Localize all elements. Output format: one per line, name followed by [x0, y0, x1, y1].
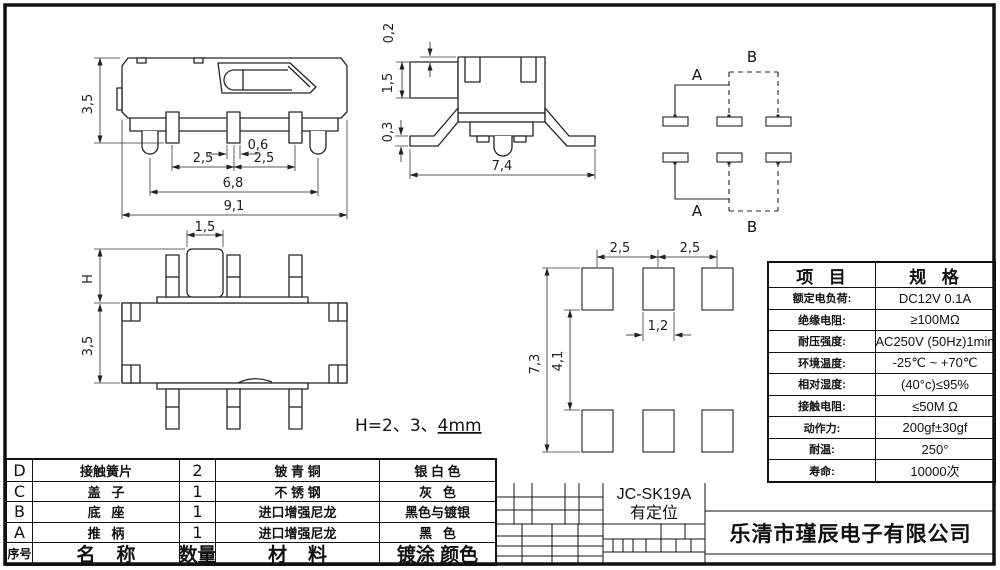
spec-row-label: 动作力:: [769, 416, 875, 438]
part-row-name: 接触簧片: [32, 460, 179, 481]
spec-header-item: 项 目: [769, 263, 875, 287]
spec-row-label: 环境温度:: [769, 352, 875, 374]
part-row-qty: 2: [179, 460, 215, 481]
spec-row-label: 额定电负荷:: [769, 287, 875, 309]
spec-row-value: ≥100MΩ: [875, 309, 994, 331]
part-row-name: 底 座: [32, 501, 179, 522]
spec-row-value: 250°: [875, 438, 994, 460]
model-number-box: JC-SK19A 有定位: [604, 485, 704, 523]
circuit-label-b-top: B: [747, 48, 757, 66]
spec-row-value: (40°c)≤95%: [875, 373, 994, 395]
h-note-prefix: H=2、3、: [355, 416, 438, 436]
spec-row-label: 相对湿度:: [769, 373, 875, 395]
spec-row-value: DC12V 0.1A: [875, 287, 994, 309]
circuit-label-b-bottom: B: [747, 218, 757, 236]
part-row-no: C: [7, 481, 32, 502]
circuit-label-a-top: A: [692, 66, 703, 84]
dim-top-overall-width: 9,1: [224, 199, 245, 214]
part-row-material: 进口增强尼龙: [215, 522, 379, 543]
circuit-label-a-bottom: A: [692, 202, 703, 220]
parts-footer-material: 材 料: [215, 542, 379, 564]
parts-footer-finish: 镀涂 颜色: [379, 542, 495, 564]
dim-footprint-pad-width: 1,2: [648, 319, 669, 334]
top-view: [122, 249, 347, 429]
part-row-no: B: [7, 501, 32, 522]
model-feature: 有定位: [630, 504, 678, 523]
side-view: [410, 57, 595, 156]
dim-front-feet-span: 6,8: [223, 176, 244, 191]
part-row-material: 铍 青 铜: [215, 460, 379, 481]
dim-footprint-outer-span: 7,3: [528, 354, 543, 375]
parts-table: D 接触簧片 2 铍 青 铜 银 白 色 C 盖 子 1 不 锈 钢 灰 色 B…: [5, 458, 497, 566]
dim-side-overall-width: 7,4: [492, 159, 513, 174]
footprint-view: [582, 268, 733, 452]
spec-row-value: 200gf±30gf: [875, 416, 994, 438]
dim-front-pitch-left: 2,5: [193, 151, 214, 166]
spec-row-value: 10000次: [875, 459, 994, 481]
part-row-finish: 黑色与镀银: [379, 501, 495, 522]
circuit-solid-path: [675, 85, 729, 199]
part-row-finish: 银 白 色: [379, 460, 495, 481]
part-row-name: 盖 子: [32, 481, 179, 502]
dim-front-pitch-right: 2,5: [254, 151, 275, 166]
h-note-underlined: 4mm: [438, 416, 482, 436]
company-name: 乐清市瑾辰电子有限公司: [706, 512, 995, 554]
dim-footprint-inner-span: 4,1: [551, 351, 566, 372]
dim-side-cover-lip: 0,2: [382, 23, 397, 44]
dim-top-body-depth: 3,5: [81, 336, 96, 357]
part-row-qty: 1: [179, 501, 215, 522]
part-row-finish: 灰 色: [379, 481, 495, 502]
circuit-diagram: [663, 72, 791, 211]
dim-side-knob-height: 1,5: [381, 73, 396, 94]
part-row-no: D: [7, 460, 32, 481]
circuit-dashed-path: [729, 72, 778, 211]
front-view: [117, 58, 347, 154]
dim-footprint-pitch-left: 2,5: [610, 241, 631, 256]
h-variant-note: H=2、3、4mm: [355, 416, 482, 436]
dim-top-knob-width: 1,5: [195, 220, 216, 235]
parts-footer-no: 序号: [7, 542, 32, 564]
spec-row-label: 寿命:: [769, 459, 875, 481]
spec-header-value: 规 格: [875, 263, 994, 287]
model-number: JC-SK19A: [617, 485, 692, 504]
part-row-finish: 黑 色: [379, 522, 495, 543]
drawing-sheet: A B A B: [0, 0, 1000, 570]
part-row-qty: 1: [179, 522, 215, 543]
spec-row-value: AC250V (50Hz)1min: [875, 330, 994, 352]
dim-footprint-pitch-right: 2,5: [680, 241, 701, 256]
part-row-no: A: [7, 522, 32, 543]
dim-front-height: 3,5: [81, 94, 96, 115]
dim-top-knob-height: H: [81, 274, 96, 284]
part-row-name: 推 柄: [32, 522, 179, 543]
spec-row-value: -25℃ ~ +70℃: [875, 352, 994, 374]
spec-table: 项 目 规 格 额定电负荷: DC12V 0.1A 绝缘电阻: ≥100MΩ 耐…: [767, 261, 996, 483]
dim-side-foot-thickness: 0,3: [381, 122, 396, 143]
spec-row-value: ≤50M Ω: [875, 395, 994, 417]
part-row-qty: 1: [179, 481, 215, 502]
spec-row-label: 耐温:: [769, 438, 875, 460]
parts-footer-qty: 数量: [179, 542, 215, 564]
spec-row-label: 接触电阻:: [769, 395, 875, 417]
spec-row-label: 绝缘电阻:: [769, 309, 875, 331]
spec-row-label: 耐压强度:: [769, 330, 875, 352]
part-row-material: 不 锈 钢: [215, 481, 379, 502]
part-row-material: 进口增强尼龙: [215, 501, 379, 522]
parts-footer-name: 名 称: [32, 542, 179, 564]
